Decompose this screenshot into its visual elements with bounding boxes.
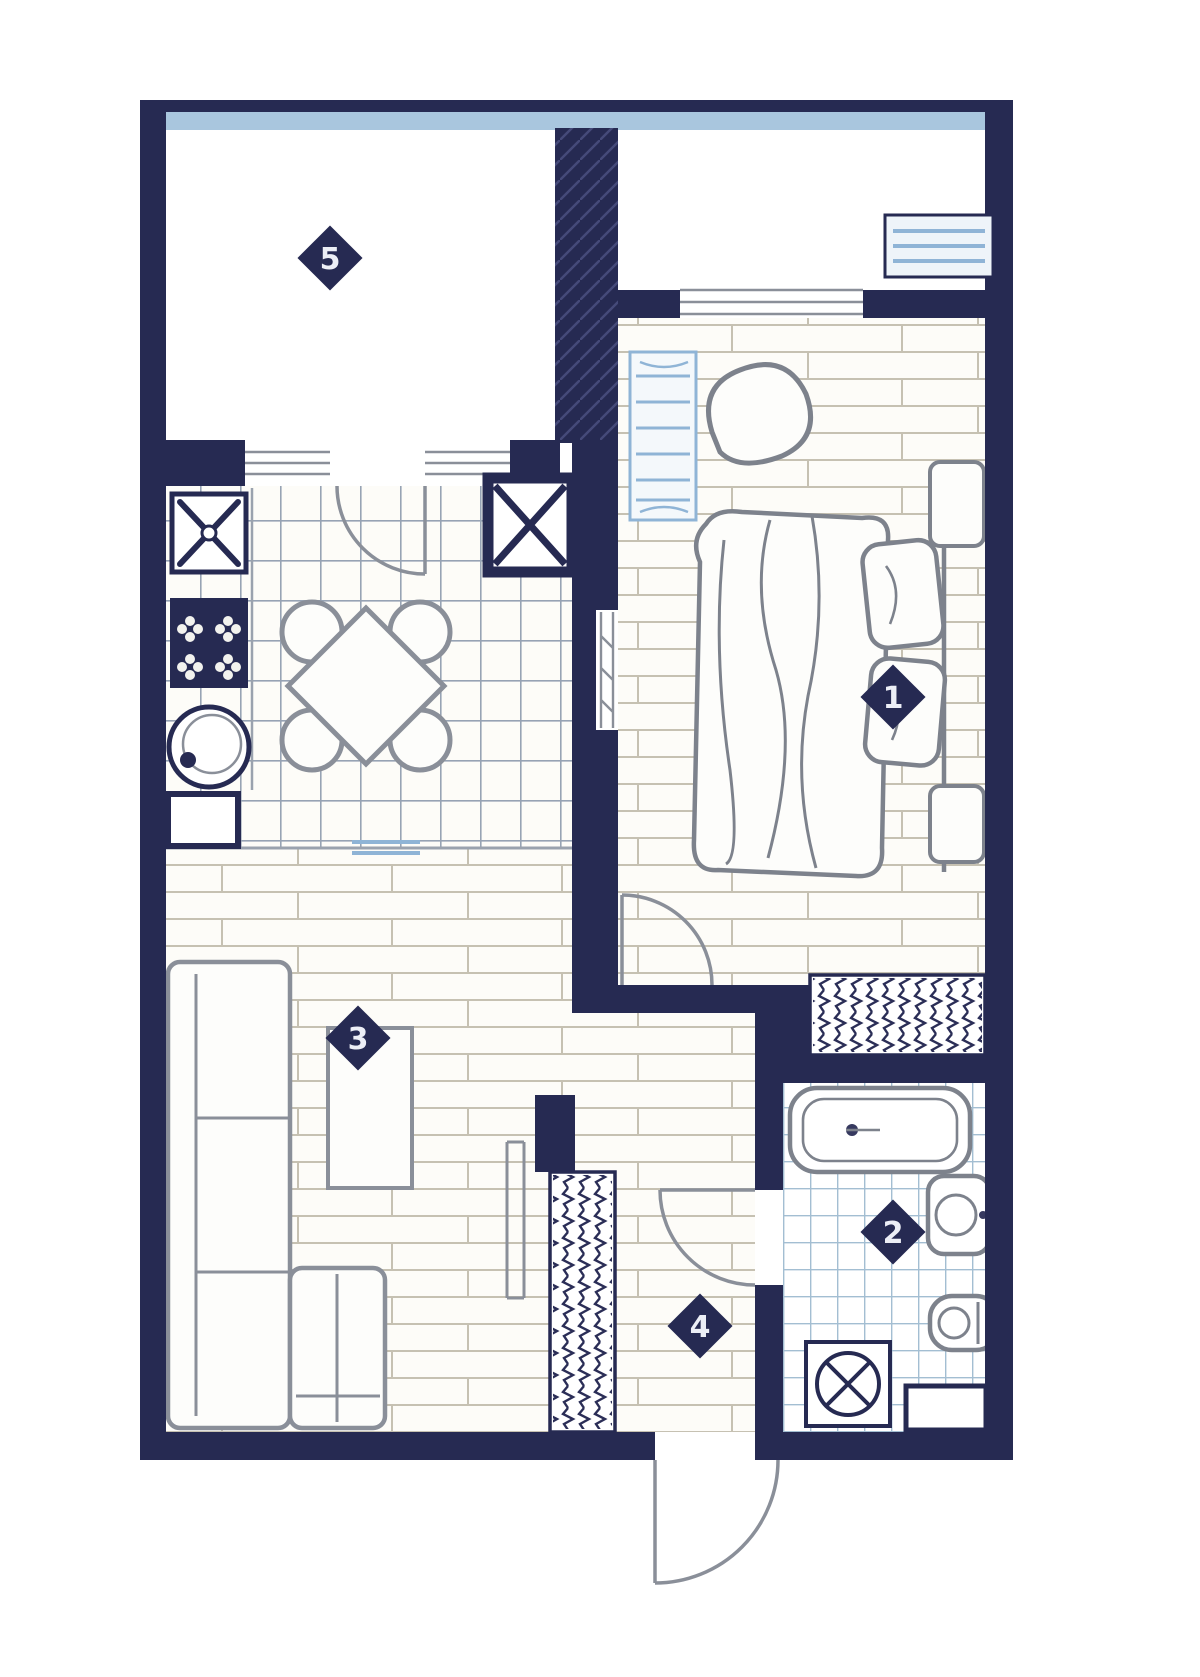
bedroom-hallway-wall (618, 985, 810, 1013)
wall-left (140, 100, 166, 1460)
bathroom-left-wall-lower (755, 1285, 783, 1460)
bathtub (790, 1088, 970, 1172)
kitchen-sink (169, 707, 249, 787)
pillow (861, 538, 945, 649)
wall-niche (596, 610, 618, 730)
shaft-wall (555, 128, 618, 443)
wall-bottom-left (140, 1432, 655, 1460)
ventilation-shaft (488, 478, 572, 572)
base-cabinet (168, 794, 238, 846)
armchair (709, 365, 811, 464)
hob (172, 494, 246, 572)
radiator (630, 352, 696, 520)
balcony-floor (166, 128, 555, 440)
bathroom-top-wall (783, 1055, 985, 1083)
hall-wall-stub (535, 1095, 575, 1172)
entrance-door (655, 1460, 778, 1583)
floor-plan-drawing: 1 2 3 4 5 (0, 0, 1200, 1677)
hallway-number: 4 (690, 1310, 711, 1345)
bathroom-left-wall-upper (755, 1013, 783, 1190)
floor-plan-page: 1 2 3 4 5 (0, 0, 1200, 1677)
washing-machine (806, 1342, 890, 1426)
wall-bottom-right (782, 1432, 1013, 1460)
living-room-number: 3 (348, 1022, 369, 1057)
balcony-number: 5 (320, 242, 341, 277)
hall-wardrobe-hangers (553, 1175, 612, 1429)
parapet-top (140, 100, 1013, 112)
nightstand (930, 462, 984, 546)
bedroom-window (680, 284, 863, 318)
balcony-door-opening (330, 440, 425, 486)
ac-unit (885, 215, 993, 277)
nightstand (930, 786, 984, 862)
balcony-glazing (156, 112, 1013, 130)
bedroom-number: 1 (883, 681, 904, 716)
dining-set (282, 602, 450, 770)
kitchen-window-left (245, 440, 330, 486)
bedroom-wardrobe-hangers (813, 978, 982, 1052)
bathroom-number: 2 (883, 1216, 904, 1251)
wash-basin (928, 1176, 990, 1254)
wall-right (985, 112, 1013, 1460)
stove (170, 598, 248, 688)
bathroom-cabinet (906, 1386, 986, 1430)
